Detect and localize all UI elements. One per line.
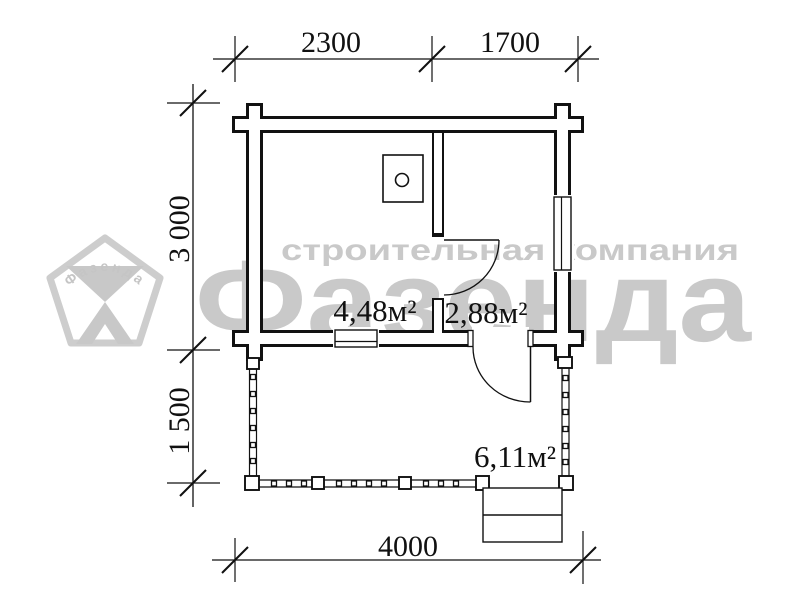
- wall-left-core: [249, 106, 260, 358]
- window-bottom: [333, 327, 379, 349]
- interior-partition: [432, 131, 444, 336]
- terrace-door-gap: [472, 327, 529, 349]
- post-bottom-mid-2: [399, 477, 411, 489]
- window-right: [551, 195, 574, 272]
- dim-label-1500: 1 500: [163, 387, 196, 455]
- stove: [383, 155, 423, 202]
- dim-label-3000: 3 000: [163, 195, 196, 263]
- window-bottom-frame: [335, 330, 377, 347]
- post-bottom-left: [245, 476, 259, 490]
- floor-plan-page: Фазенда строительная компания Фазенда: [0, 0, 800, 600]
- wall-top-core: [235, 119, 581, 130]
- dim-label-2300: 2300: [301, 26, 361, 59]
- partition-stub-core: [434, 300, 442, 336]
- terrace-door-jamb-left: [468, 331, 473, 347]
- dim-label-1700: 1700: [480, 26, 540, 59]
- post-top-right: [558, 357, 572, 368]
- partition-upper-core: [434, 133, 442, 233]
- area-label-entry-room: 2,88м²: [444, 295, 527, 330]
- terrace-door-jamb-right: [528, 331, 533, 347]
- stove-flue-icon: [396, 174, 409, 187]
- post-bottom-mid-1: [312, 477, 324, 489]
- dim-label-4000: 4000: [378, 530, 438, 563]
- floor-plan-drawing: Фазенда строительная компания Фазенда: [0, 0, 800, 600]
- post-top-left: [247, 358, 259, 369]
- area-label-main-room: 4,48м²: [333, 293, 416, 328]
- steps: [483, 488, 562, 542]
- window-right-frame: [554, 197, 571, 270]
- area-label-terrace: 6,11м²: [474, 439, 556, 474]
